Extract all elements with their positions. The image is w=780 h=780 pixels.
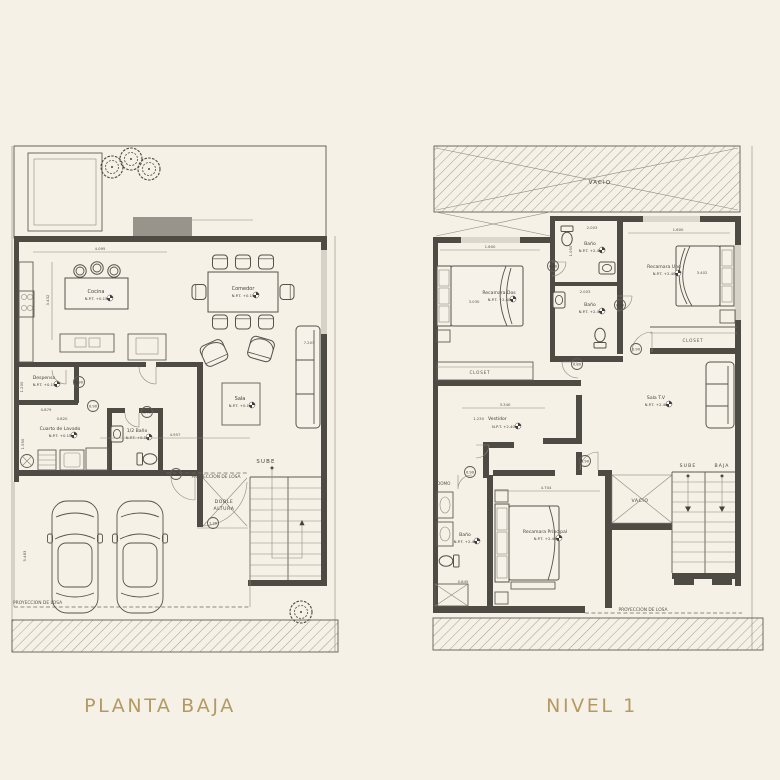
bano-principal-npt: N.P.T. +2.40 [454,539,477,544]
cuarto-lavado-npt: N.P.T. +0.15 [49,433,72,438]
sube-label: SUBE [680,463,697,469]
dim-label: 7.203 [304,340,315,345]
kitchen-island [65,262,128,309]
svg-text:0.92: 0.92 [172,473,180,477]
proyeccion-losa-label: PROYECCION DE LOSA [191,474,240,480]
dim-label: 3.340 [500,402,511,407]
dim-label: 0.879 [41,407,52,412]
dim-label: 4.704 [541,485,552,490]
dim-label: 4.095 [95,246,106,251]
dim-label: 1.230 [473,416,484,421]
svg-text:0.90: 0.90 [581,460,590,464]
sink [599,262,615,274]
dim-label: 0.845 [458,579,469,584]
svg-text:0.90: 0.90 [75,381,84,385]
toilet [561,226,573,246]
dim-label: 1.050 [568,245,573,256]
closet-label: CLOSET [469,370,490,375]
sidewalk-hatch-strip [433,618,763,650]
bano-dos-label: Baño [584,302,596,308]
level-marker-icon [675,270,681,276]
level-marker-icon [510,296,516,302]
recamara-dos-label: Recamara Dos [482,290,516,296]
baja-label: BAJA [714,463,729,469]
recamara-dos-npt: N.P.T. +2.40 [488,297,511,302]
level-marker-icon [71,432,77,438]
dim-label: 2.003 [580,289,591,294]
toilet [137,453,157,465]
level-marker-icon [253,292,259,298]
cocina-label: Cocina [88,289,105,295]
recamara-principal-npt: N.P.T. +2.40 [534,536,557,541]
despensa-label: Despensa [33,375,56,381]
medio-bano-npt: N.P.T. +0.15 [126,435,149,440]
sheet-background [0,0,780,780]
sube-label: SUBE [256,459,275,465]
dim-label: 1.200 [19,381,24,392]
vestidor-label: Vestidor [488,416,507,422]
planta-baja-title: PLANTA BAJA [84,695,236,717]
level-marker-icon [107,295,113,301]
svg-text:0.90: 0.90 [466,471,475,475]
sala-tv-label: Sala T.V [647,395,666,401]
sink [553,292,565,308]
dim-label: 1.550 [20,438,25,449]
vacio-label: VACIO [631,498,648,504]
sala-label: Sala [235,396,246,402]
proyeccion-losa-label: PROYECCION DE LOSA [13,600,62,606]
dim-label: 3.402 [697,270,708,275]
dim-label: 3.030 [469,299,480,304]
roof-block [133,217,192,237]
recamara-principal-label: Recamara Principal [523,529,567,535]
toilet [594,328,606,348]
sidewalk-hatch-strip [12,620,338,652]
nivel-1-title: NIVEL 1 [546,695,638,717]
svg-text:0.90: 0.90 [89,405,98,409]
medio-bano-label: 1/2 Baño [127,428,148,434]
svg-text:0.60: 0.60 [616,304,625,308]
dim-label: 5.483 [22,550,27,561]
dim-label: 2.003 [587,225,598,230]
dim-label: 0.820 [57,416,68,421]
level-marker-icon [556,535,562,541]
comedor-npt: N.P.T. +0.15 [232,293,255,298]
architectural-sheet: Cocina N.P.T. +0.15 Comedor N.P.T. +0.15… [0,0,780,780]
doble-altura-label: ALTURA [214,506,235,512]
svg-text:0.60: 0.60 [549,265,558,269]
sink [111,426,123,442]
recamara-uno-npt: N.P.T. +2.40 [653,271,676,276]
sala-npt: N.P.T. +0.15 [229,403,252,408]
level-marker-icon [666,401,672,407]
comedor-label: Comedor [232,286,256,292]
dim-label: 1.600 [673,227,684,232]
level-marker-icon [515,423,521,429]
vacio-label: VACIO [589,180,612,186]
cuarto-lavado-label: Cuarto de Lavado [40,426,81,432]
svg-text:0.70: 0.70 [143,411,152,415]
bano-uno-npt: N.P.T. +2.40 [579,248,602,253]
level-marker-icon [249,402,255,408]
svg-text:0.80: 0.80 [573,363,582,367]
dim-label: 4.957 [170,432,181,437]
dim-label: 3.432 [45,294,50,305]
svg-text:0.90: 0.90 [632,348,641,352]
cocina-npt: N.P.T. +0.15 [85,296,108,301]
bano-principal-label: Baño [459,532,471,538]
level-marker-icon [599,308,605,314]
proyeccion-losa-label: PROYECCION DE LOSA [618,607,667,613]
bano-uno-label: Baño [584,241,596,247]
level-marker-icon [599,247,605,253]
despensa-npt: N.P.T. +0.15 [33,382,56,387]
level-marker-icon [474,538,480,544]
closet-label: CLOSET [682,338,703,343]
window [321,250,327,334]
dim-label: 1.600 [485,244,496,249]
recamara-uno-label: Recamara Uno [647,264,681,270]
sofa-tv [706,362,734,428]
floor-plans-canvas: Cocina N.P.T. +0.15 Comedor N.P.T. +0.15… [0,0,780,780]
domo-label: DOMO [437,481,451,486]
svg-text:1.30: 1.30 [209,522,218,526]
toilet [439,555,459,567]
vestidor-npt: N.P.T. +2.40 [492,424,515,429]
bano-dos-npt: N.P.T. +2.40 [579,309,602,314]
doble-altura-label: DOBLE [215,499,234,505]
sala-tv-npt: N.P.T. +2.40 [645,402,668,407]
level-marker-icon [146,434,152,440]
